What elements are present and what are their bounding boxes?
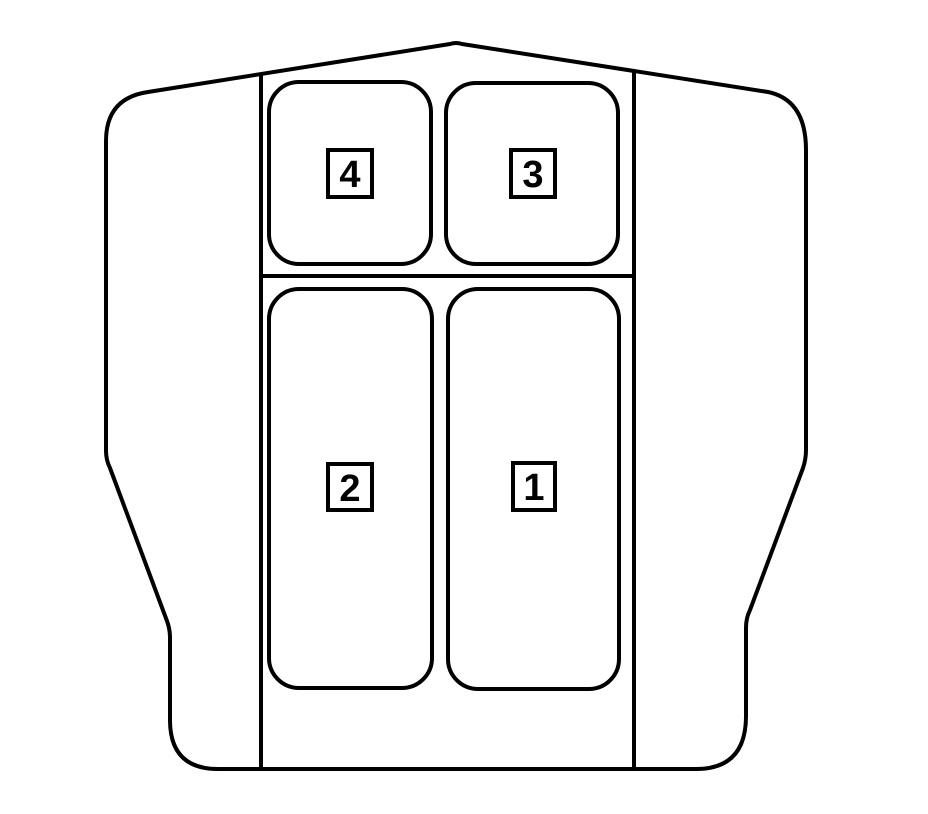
label-text-3: 3 [522,154,543,196]
label-text-4: 4 [339,154,360,196]
diagram-lines: 4 3 2 1 [106,43,806,769]
label-text-1: 1 [523,467,544,509]
panel-diagram-svg: 4 3 2 1 [0,0,928,814]
panel-diagram: 4 3 2 1 [0,0,928,814]
label-text-2: 2 [339,468,360,510]
